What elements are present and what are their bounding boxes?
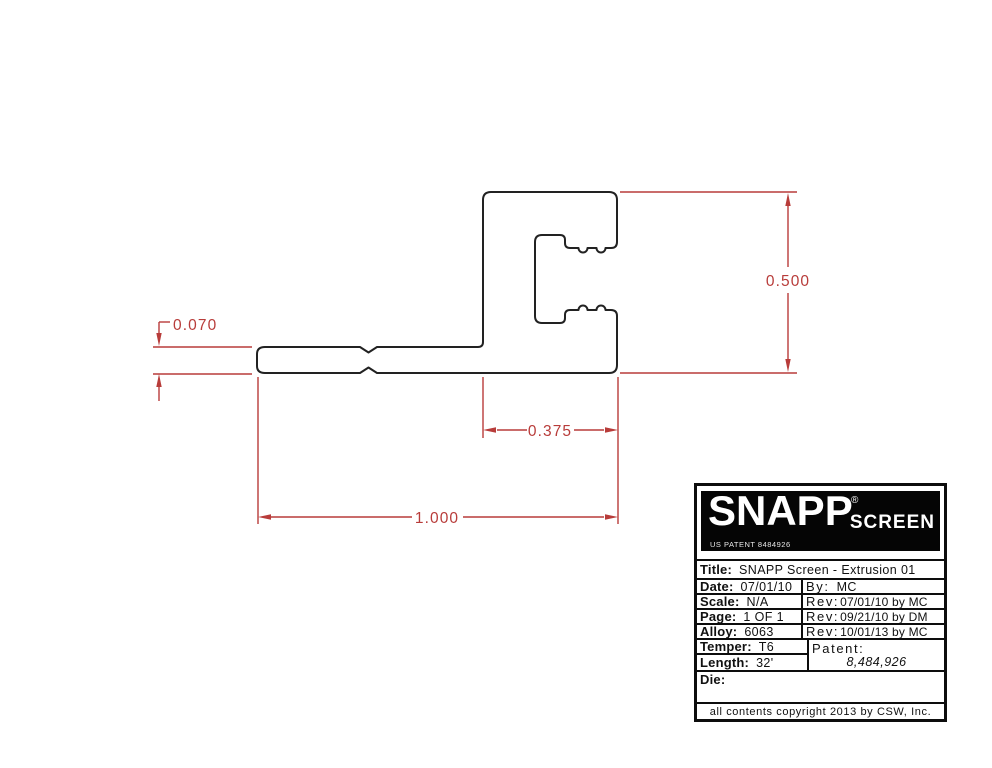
- scale-value: N/A: [740, 595, 769, 608]
- scale-label: Scale:: [697, 595, 740, 608]
- patent-cell: Patent: 8,484,926: [809, 640, 944, 670]
- dim-label-overall-height: 0.500: [766, 273, 810, 290]
- copyright-row: all contents copyright 2013 by CSW, Inc.: [697, 702, 944, 719]
- title-row: Title: SNAPP Screen - Extrusion 01: [697, 559, 944, 578]
- dimension-channel-width: 0.375: [483, 377, 618, 524]
- page-label: Page:: [697, 610, 736, 623]
- rev3-value: 10/01/13 by MC: [839, 625, 928, 639]
- temper-length-column: Temper: T6 Length: 32': [697, 640, 809, 670]
- length-cell: Length: 32': [697, 653, 807, 670]
- rev2-label: Rev:: [803, 609, 839, 623]
- extrusion-profile-outline: [257, 192, 617, 373]
- rev1-value: 07/01/10 by MC: [839, 595, 928, 609]
- logo-patent-note: US PATENT 8484926: [710, 540, 791, 549]
- temper-cell: Temper: T6: [697, 640, 807, 653]
- drawing-sheet: 0.500 0.070 0.375: [0, 0, 992, 768]
- dim-label-overall-width: 1.000: [415, 510, 459, 527]
- arrowhead: [156, 333, 161, 346]
- rev2-cell: Rev: 09/21/10 by DM: [803, 609, 944, 623]
- date-cell: Date: 07/01/10: [697, 580, 803, 593]
- dimension-overall-width: 1.000: [258, 377, 618, 527]
- title-value: SNAPP Screen - Extrusion 01: [732, 563, 916, 577]
- scale-rev-row: Scale: N/A Rev: 07/01/10 by MC: [697, 593, 944, 608]
- length-label: Length:: [697, 655, 749, 670]
- temper-value: T6: [752, 640, 774, 653]
- page-rev-row: Page: 1 OF 1 Rev: 09/21/10 by DM: [697, 608, 944, 623]
- by-value: MC: [830, 580, 857, 594]
- arrowhead: [785, 359, 790, 372]
- rev2-value: 09/21/10 by DM: [839, 610, 928, 624]
- alloy-label: Alloy:: [697, 625, 737, 638]
- arrowhead: [156, 374, 161, 387]
- title-label: Title:: [697, 562, 732, 577]
- page-cell: Page: 1 OF 1: [697, 610, 803, 623]
- alloy-value: 6063: [737, 625, 773, 638]
- alloy-cell: Alloy: 6063: [697, 625, 803, 638]
- rev3-label: Rev:: [803, 624, 839, 638]
- snapp-screen-logo: SNAPP ® SCREEN US PATENT 8484926: [701, 491, 940, 551]
- dim-label-leg-thickness: 0.070: [173, 317, 217, 334]
- length-value: 32': [749, 656, 774, 670]
- by-cell: By: MC: [803, 579, 944, 593]
- date-value: 07/01/10: [734, 580, 793, 593]
- scale-cell: Scale: N/A: [697, 595, 803, 608]
- rev1-cell: Rev: 07/01/10 by MC: [803, 594, 944, 608]
- registered-trademark-icon: ®: [851, 495, 858, 506]
- page-value: 1 OF 1: [736, 610, 784, 623]
- temper-label: Temper:: [697, 640, 752, 653]
- patent-value: 8,484,926: [809, 655, 944, 669]
- rev3-cell: Rev: 10/01/13 by MC: [803, 624, 944, 638]
- by-label: By:: [803, 579, 830, 593]
- arrowhead: [605, 427, 618, 432]
- dim-label-channel-width: 0.375: [528, 423, 572, 440]
- patent-label: Patent:: [812, 641, 864, 656]
- dimension-leg-thickness: 0.070: [153, 317, 252, 401]
- arrowhead: [785, 193, 790, 206]
- arrowhead: [483, 427, 496, 432]
- die-row: Die:: [697, 670, 944, 702]
- date-label: Date:: [697, 580, 734, 593]
- rev1-label: Rev:: [803, 594, 839, 608]
- die-label: Die:: [697, 672, 725, 687]
- alloy-rev-row: Alloy: 6063 Rev: 10/01/13 by MC: [697, 623, 944, 638]
- logo-brand-text: SNAPP: [708, 491, 853, 535]
- title-block: SNAPP ® SCREEN US PATENT 8484926 Title: …: [694, 483, 947, 722]
- dimension-overall-height: 0.500: [620, 192, 810, 373]
- temper-length-patent-row: Temper: T6 Length: 32' Patent: 8,484,926: [697, 638, 944, 670]
- arrowhead: [258, 514, 271, 519]
- logo-brand2-text: SCREEN: [850, 512, 935, 534]
- copyright-text: all contents copyright 2013 by CSW, Inc.: [710, 706, 932, 718]
- date-by-row: Date: 07/01/10 By: MC: [697, 578, 944, 593]
- arrowhead: [605, 514, 618, 519]
